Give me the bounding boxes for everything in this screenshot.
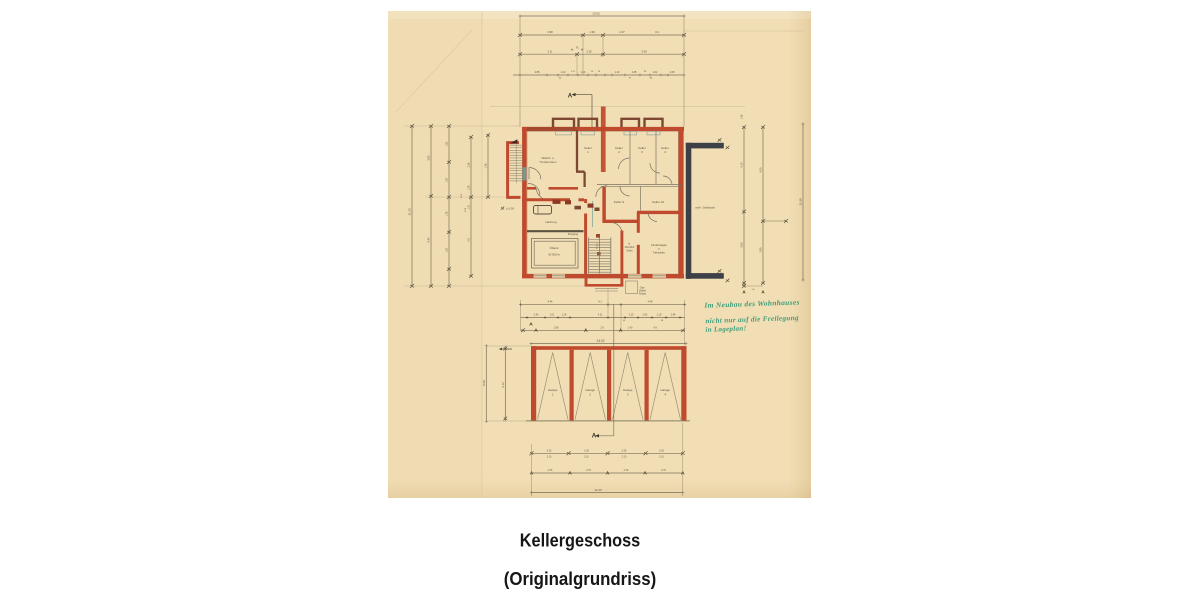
svg-text:1.10: 1.10 xyxy=(629,314,634,317)
svg-text:1.38: 1.38 xyxy=(589,30,595,34)
svg-text:2.76: 2.76 xyxy=(548,469,553,472)
svg-text:1.26: 1.26 xyxy=(468,185,471,190)
svg-text:Fahrräder: Fahrräder xyxy=(653,250,665,254)
svg-text:3.60: 3.60 xyxy=(740,242,744,248)
svg-text:2.80: 2.80 xyxy=(759,247,763,253)
svg-text:1.87: 1.87 xyxy=(446,247,449,252)
svg-text:2.36: 2.36 xyxy=(534,314,539,317)
svg-text:4.1: 4.1 xyxy=(598,301,602,304)
svg-text:2.76: 2.76 xyxy=(586,469,591,472)
svg-text:Garage: Garage xyxy=(548,388,558,392)
svg-text:1.01: 1.01 xyxy=(468,204,471,209)
svg-text:13.02: 13.02 xyxy=(597,339,605,343)
svg-text:2.10: 2.10 xyxy=(584,456,589,459)
svg-text:1.98: 1.98 xyxy=(554,326,559,329)
svg-text:Anbau: Anbau xyxy=(639,293,647,296)
svg-text:Öltank: Öltank xyxy=(550,246,559,250)
svg-text:3.11: 3.11 xyxy=(547,49,553,53)
svg-text:2.76: 2.76 xyxy=(624,469,629,472)
svg-text:26 Stg: 26 Stg xyxy=(596,244,599,250)
svg-text:± 0.00: ± 0.00 xyxy=(506,207,514,211)
svg-text:1.10: 1.10 xyxy=(615,71,620,74)
svg-text:2.36: 2.36 xyxy=(468,162,471,167)
svg-text:2.10: 2.10 xyxy=(547,456,552,459)
svg-text:2.10: 2.10 xyxy=(659,456,664,459)
svg-text:(Originalgrundriss): (Originalgrundriss) xyxy=(504,569,657,589)
svg-text:Garage: Garage xyxy=(660,388,670,392)
svg-text:12.26: 12.26 xyxy=(594,488,602,492)
svg-text:A: A xyxy=(568,92,573,99)
svg-text:1.48: 1.48 xyxy=(671,314,676,317)
svg-text:Kellergeschoss: Kellergeschoss xyxy=(520,530,641,550)
svg-text:Keller 9: Keller 9 xyxy=(614,200,625,204)
svg-text:Trockenraum: Trockenraum xyxy=(540,160,558,164)
svg-text:1.14: 1.14 xyxy=(562,314,567,317)
svg-text:2.37: 2.37 xyxy=(619,30,625,34)
svg-text:2.35: 2.35 xyxy=(622,449,627,452)
svg-text:3.3: 3.3 xyxy=(655,30,659,34)
svg-text:1.10: 1.10 xyxy=(657,314,662,317)
svg-text:vorh. Gebäude: vorh. Gebäude xyxy=(695,205,715,209)
svg-text:2.35: 2.35 xyxy=(547,449,552,452)
svg-text:30 000 ltr: 30 000 ltr xyxy=(548,253,560,257)
svg-text:1.38: 1.38 xyxy=(485,163,488,168)
svg-text:1.10: 1.10 xyxy=(561,71,566,74)
svg-text:13.02: 13.02 xyxy=(592,12,600,16)
svg-text:1.76: 1.76 xyxy=(446,211,449,216)
svg-text:1.40: 1.40 xyxy=(628,326,633,329)
svg-text:3.82: 3.82 xyxy=(427,155,431,161)
svg-text:4.50: 4.50 xyxy=(759,167,763,173)
svg-text:4.11: 4.11 xyxy=(598,314,603,317)
svg-text:1.10: 1.10 xyxy=(581,71,586,74)
svg-text:2.10: 2.10 xyxy=(622,456,627,459)
svg-text:1.02: 1.02 xyxy=(653,71,658,74)
svg-text:2.76: 2.76 xyxy=(661,469,666,472)
svg-text:3.38: 3.38 xyxy=(641,49,647,53)
svg-text:Garage: Garage xyxy=(585,388,595,392)
svg-text:4.98: 4.98 xyxy=(547,30,553,34)
svg-text:Heizung: Heizung xyxy=(545,220,556,224)
svg-text:4.44: 4.44 xyxy=(548,301,553,304)
svg-text:1.38: 1.38 xyxy=(741,114,744,119)
svg-text:2.35: 2.35 xyxy=(584,449,589,452)
svg-text:1.62: 1.62 xyxy=(446,141,449,146)
svg-text:11.36: 11.36 xyxy=(408,208,412,216)
svg-text:Keller: Keller xyxy=(626,250,632,253)
svg-text:u.: u. xyxy=(658,248,660,251)
svg-text:5.12: 5.12 xyxy=(501,382,505,388)
svg-text:Keller 10: Keller 10 xyxy=(652,200,664,204)
svg-text:Kinderwagen: Kinderwagen xyxy=(651,243,667,247)
svg-text:2.62: 2.62 xyxy=(643,314,648,317)
svg-text:Flurgang: Flurgang xyxy=(568,232,579,236)
svg-text:4.48: 4.48 xyxy=(648,301,653,304)
svg-text:2.35: 2.35 xyxy=(586,49,592,53)
svg-text:11.98: 11.98 xyxy=(798,198,802,206)
svg-text:2.35: 2.35 xyxy=(632,71,637,74)
svg-text:1.87: 1.87 xyxy=(446,177,449,182)
svg-text:2.35: 2.35 xyxy=(659,449,664,452)
svg-text:4.40: 4.40 xyxy=(427,237,431,243)
svg-text:8.00: 8.00 xyxy=(482,380,486,386)
svg-text:Garage: Garage xyxy=(623,388,633,392)
svg-text:4.10: 4.10 xyxy=(740,162,744,168)
svg-text:2.85: 2.85 xyxy=(535,71,540,74)
svg-text:in Lageplan!: in Lageplan! xyxy=(705,324,746,333)
svg-text:1.01: 1.01 xyxy=(550,314,555,317)
svg-text:1.08: 1.08 xyxy=(670,71,675,74)
